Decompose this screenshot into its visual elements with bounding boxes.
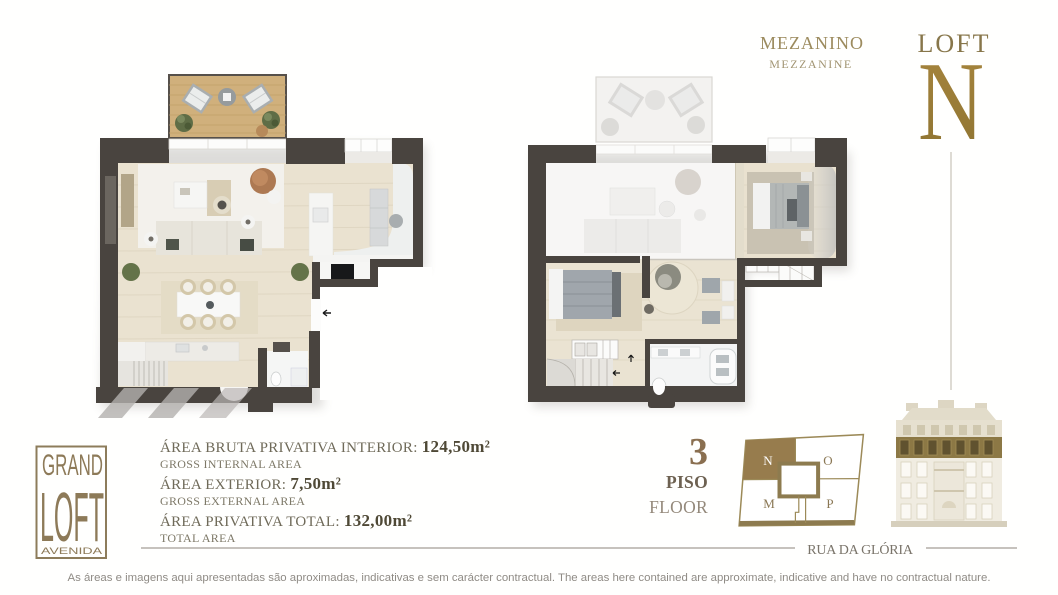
svg-text:N: N [763, 453, 773, 468]
svg-text:As áreas e imagens aqui aprese: As áreas e imagens aqui apresentadas são… [68, 572, 991, 584]
svg-text:LOFT: LOFT [40, 478, 104, 556]
svg-text:ÁREA BRUTA PRIVATIVA INTERIOR:: ÁREA BRUTA PRIVATIVA INTERIOR: 124,50m² [160, 437, 490, 456]
svg-text:RUA DA GLÓRIA: RUA DA GLÓRIA [807, 541, 914, 558]
svg-text:GROSS INTERNAL AREA: GROSS INTERNAL AREA [160, 457, 302, 471]
svg-text:3: 3 [689, 431, 708, 473]
svg-text:ÁREA EXTERIOR: 7,50m²: ÁREA EXTERIOR: 7,50m² [160, 474, 341, 493]
svg-text:ÁREA PRIVATIVA TOTAL: 132,00m²: ÁREA PRIVATIVA TOTAL: 132,00m² [160, 511, 412, 530]
svg-text:PISO: PISO [666, 472, 708, 492]
svg-text:N: N [918, 40, 984, 164]
svg-text:FLOOR: FLOOR [649, 497, 708, 517]
svg-text:TOTAL AREA: TOTAL AREA [160, 531, 236, 545]
svg-text:O: O [823, 453, 832, 468]
svg-text:GROSS EXTERNAL AREA: GROSS EXTERNAL AREA [160, 494, 305, 508]
svg-text:M: M [763, 496, 775, 511]
svg-text:MEZZANINE: MEZZANINE [769, 57, 852, 71]
svg-text:P: P [826, 496, 833, 511]
svg-text:MEZANINO: MEZANINO [760, 33, 864, 53]
svg-text:AVENIDA: AVENIDA [41, 546, 102, 556]
